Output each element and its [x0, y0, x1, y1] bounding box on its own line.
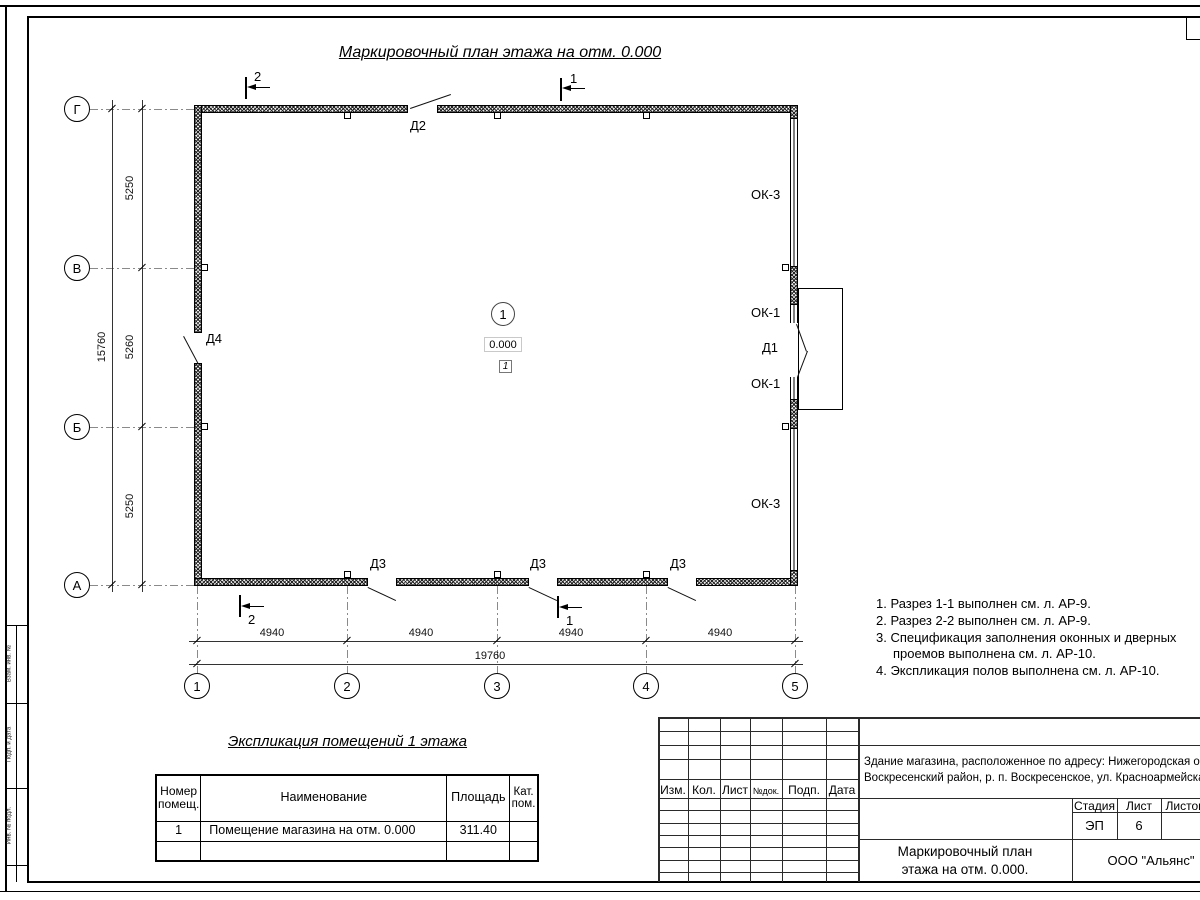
titleblock-line — [658, 717, 660, 882]
axis-bubble-5: 5 — [782, 673, 808, 699]
axis-line-5 — [795, 586, 796, 673]
explication-cell-num: 1 — [156, 821, 201, 841]
titleblock-line — [720, 717, 721, 882]
axis-line-4 — [646, 586, 647, 673]
wall-tick — [201, 264, 208, 271]
door-label-d1: Д1 — [762, 340, 778, 355]
wall-right-top — [790, 105, 798, 119]
wall-tick — [643, 571, 650, 578]
dim-label-4940-1: 4940 — [247, 627, 297, 639]
titleblock-list-label: Лист — [720, 783, 750, 797]
strip-div-1 — [5, 625, 27, 626]
notes-block: 1. Разрез 1-1 выполнен см. л. АР-9. 2. Р… — [876, 596, 1200, 680]
titleblock-line — [658, 835, 858, 836]
floor-type-marker: 1 — [499, 360, 512, 373]
dim-line-left-total — [112, 100, 113, 592]
dim-label-4940-3: 4940 — [546, 627, 596, 639]
dim-label-bottom-total: 19760 — [458, 650, 522, 662]
strip-div-3 — [5, 788, 27, 789]
explication-cell-cat — [510, 821, 538, 841]
wall-tick — [344, 112, 351, 119]
titleblock-doc-line1: Маркировочный план — [858, 843, 1072, 861]
titleblock-doc-title: Маркировочный план этажа на отм. 0.000. — [858, 843, 1072, 879]
axis-bubble-g: Г — [64, 96, 90, 122]
note-line-2: 2. Разрез 2-2 выполнен см. л. АР-9. — [876, 613, 1200, 630]
explication-empty-cell — [447, 841, 510, 861]
titleblock-line — [658, 860, 858, 861]
dim-line-bottom-total — [189, 664, 803, 665]
explication-header-num: Номер помещ. — [156, 775, 201, 821]
explication-header-cat: Кат. пом. — [510, 775, 538, 821]
titleblock-line — [858, 839, 1200, 840]
wall-tick — [782, 264, 789, 271]
section-label-1-top: 1 — [570, 71, 577, 86]
dim-label-4940-4: 4940 — [695, 627, 745, 639]
section-label-1-bottom: 1 — [566, 613, 573, 628]
titleblock-sheet-value: 6 — [1117, 818, 1161, 833]
strip-div-2 — [5, 703, 27, 704]
dim-label-5250-bottom: 5250 — [124, 488, 136, 524]
wall-tick — [201, 423, 208, 430]
explication-empty-cell — [510, 841, 538, 861]
frame-inner-top — [27, 16, 1200, 18]
titleblock-line — [658, 872, 858, 873]
dim-label-left-total: 15760 — [96, 329, 108, 365]
window-ok3-bottom — [790, 429, 798, 570]
titleblock-line — [658, 717, 1200, 719]
strip-label-inv: Инв. № подл. — [7, 791, 16, 861]
explication-title: Экспликация помещений 1 этажа — [225, 733, 470, 750]
wall-tick — [643, 112, 650, 119]
note-line-1: 1. Разрез 1-1 выполнен см. л. АР-9. — [876, 596, 1200, 613]
titleblock-line — [658, 745, 858, 746]
titleblock-line — [658, 847, 858, 848]
wall-bottom-4 — [696, 578, 798, 586]
section-label-2-top: 2 — [254, 69, 261, 84]
strip-mid-line — [16, 625, 17, 882]
titleblock-stage-label: Стадия — [1072, 799, 1117, 813]
titleblock-object: Здание магазина, расположенное по адресу… — [864, 754, 1200, 796]
explication-cell-area: 311.40 — [447, 821, 510, 841]
door-label-d2: Д2 — [410, 118, 426, 133]
titleblock-line — [658, 798, 858, 799]
titleblock-line — [658, 731, 858, 732]
section-arrow-line — [566, 607, 582, 608]
strip-label-podp: Подп. и дата — [7, 710, 16, 780]
window-ok1-top — [790, 305, 798, 323]
window-label-ok1-top: ОК-1 — [751, 305, 780, 320]
door-leaf-d4 — [183, 336, 199, 365]
door-label-d3-1: Д3 — [370, 556, 386, 571]
drawing-title: Маркировочный план этажа на отм. 0.000 — [320, 44, 680, 62]
titleblock-line — [688, 717, 689, 882]
explication-table: Номер помещ. Наименование Площадь Кат. п… — [155, 774, 539, 862]
axis-bubble-4: 4 — [633, 673, 659, 699]
titleblock-line — [658, 779, 858, 780]
frame-inner-bottom — [27, 881, 1200, 883]
dim-label-5250-top: 5250 — [124, 170, 136, 206]
titleblock-izm-label: Изм. — [658, 783, 688, 797]
window-label-ok3-top: ОК-3 — [751, 187, 780, 202]
section-label-2-bottom: 2 — [248, 612, 255, 627]
door-label-d3-2: Д3 — [530, 556, 546, 571]
titleblock-line — [750, 717, 751, 882]
note-line-3b: проемов выполнена см. л. АР-10. — [876, 646, 1200, 663]
axis-bubble-v: В — [64, 255, 90, 281]
section-arrow-line — [248, 606, 264, 607]
format-box-left — [1186, 17, 1187, 39]
explication-empty-cell — [201, 841, 447, 861]
titleblock-sheet-label: Лист — [1117, 799, 1161, 813]
frame-outer-top — [0, 5, 1200, 7]
door-leaf-d3-3 — [667, 587, 696, 601]
wall-bottom-1 — [194, 578, 368, 586]
section-arrow-line — [254, 87, 270, 88]
window-label-ok1-bottom: ОК-1 — [751, 376, 780, 391]
door-leaf-d3-2 — [528, 587, 557, 601]
window-ok3-top — [790, 119, 798, 266]
explication-header-area: Площадь — [447, 775, 510, 821]
axis-line-2 — [347, 586, 348, 673]
dim-label-5260: 5260 — [124, 329, 136, 365]
titleblock-sheets-label: Листов — [1161, 799, 1200, 813]
wall-tick — [494, 112, 501, 119]
frame-inner-left — [27, 16, 29, 882]
titleblock-line — [782, 717, 783, 882]
titleblock-ndok-label: №док. — [750, 786, 782, 796]
titleblock-line — [658, 810, 858, 811]
titleblock-object-line1: Здание магазина, расположенное по адресу… — [864, 754, 1200, 770]
wall-right-pier-v — [790, 266, 798, 305]
strip-div-4 — [5, 865, 27, 866]
titleblock-line — [658, 823, 858, 824]
wall-bottom-3 — [557, 578, 668, 586]
titleblock-podp-label: Подп. — [782, 783, 826, 797]
wall-tick — [344, 571, 351, 578]
wall-bottom-2 — [396, 578, 529, 586]
note-line-3: 3. Спецификация заполнения оконных и две… — [876, 630, 1200, 647]
window-ok1-bottom — [790, 377, 798, 399]
axis-bubble-b: Б — [64, 414, 90, 440]
titleblock-kol-label: Кол. — [688, 783, 720, 797]
note-line-4: 4. Экспликация полов выполнена см. л. АР… — [876, 663, 1200, 680]
axis-bubble-2: 2 — [334, 673, 360, 699]
titleblock-line — [858, 745, 1200, 746]
axis-bubble-1: 1 — [184, 673, 210, 699]
explication-header-name: Наименование — [201, 775, 447, 821]
titleblock-line — [658, 759, 858, 760]
frame-outer-bottom — [0, 891, 1200, 893]
axis-bubble-a: А — [64, 572, 90, 598]
explication-cell-name: Помещение магазина на отм. 0.000 — [201, 821, 447, 841]
titleblock-line — [826, 717, 827, 882]
titleblock-doc-line2: этажа на отм. 0.000. — [858, 861, 1072, 879]
explication-empty-cell — [156, 841, 201, 861]
door-label-d4: Д4 — [206, 331, 222, 346]
door-label-d3-3: Д3 — [670, 556, 686, 571]
dim-line-left-chain — [142, 100, 143, 592]
wall-top-left — [194, 105, 408, 113]
axis-bubble-3: 3 — [484, 673, 510, 699]
wall-top-right — [437, 105, 798, 113]
dim-label-4940-2: 4940 — [396, 627, 446, 639]
titleblock-data-label: Дата — [826, 783, 858, 797]
wall-tick — [494, 571, 501, 578]
wall-right-pier-b — [790, 399, 798, 429]
format-box-bottom — [1186, 39, 1200, 40]
room-elevation: 0.000 — [484, 337, 522, 352]
room-number-bubble: 1 — [491, 302, 515, 326]
wall-left-upper — [194, 105, 202, 333]
titleblock-company: ООО "Альянс" — [1072, 853, 1200, 868]
wall-right-bottom — [790, 570, 798, 586]
wall-left-lower — [194, 363, 202, 586]
titleblock-stage-value: ЭП — [1072, 818, 1117, 833]
axis-line-1 — [197, 586, 198, 673]
wall-tick — [782, 423, 789, 430]
strip-label-vzam: Взам. инв. № — [7, 629, 16, 699]
drawing-sheet: Взам. инв. № Подп. и дата Инв. № подл. М… — [0, 0, 1200, 900]
door-leaf-d3-1 — [367, 587, 396, 601]
titleblock-object-line2: Воскресенский район, р. п. Воскресенское… — [864, 770, 1200, 786]
section-arrow-line — [569, 88, 585, 89]
window-label-ok3-bottom: ОК-3 — [751, 496, 780, 511]
